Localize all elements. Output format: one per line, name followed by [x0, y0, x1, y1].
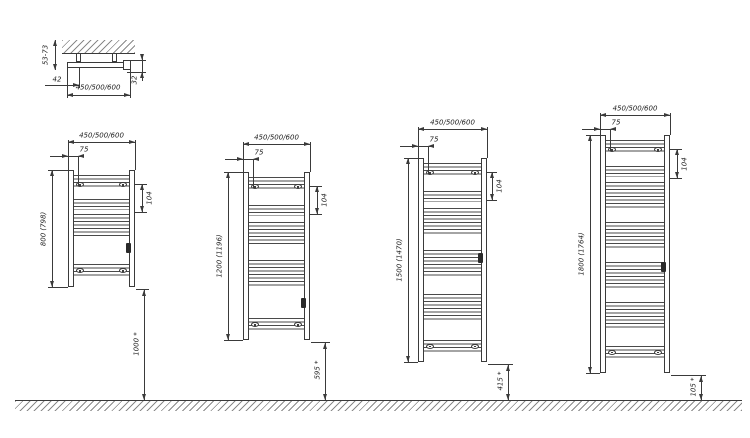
down-arrowhead: [675, 172, 679, 178]
tube-group: [606, 222, 664, 250]
tube-group: [606, 302, 664, 330]
mounting-bracket: [608, 350, 616, 355]
tube-group: [606, 182, 664, 210]
width-dimension-label: 450/500/600: [613, 106, 658, 113]
radiator-figure-4: 450/500/600751041800 (1764)105 *: [0, 0, 750, 438]
mounting-bracket: [654, 147, 662, 152]
up-arrowhead: [588, 135, 592, 141]
offset-dimension-label: 75: [612, 120, 621, 127]
dimension-line: [600, 115, 670, 116]
down-arrowhead: [699, 394, 703, 400]
up-arrowhead: [675, 149, 679, 155]
radiators-group: 450/500/60075104800 (798)1000 *450/500/6…: [0, 0, 750, 438]
mounting-bracket: [654, 350, 662, 355]
reference-line: [610, 129, 611, 151]
valve: [661, 262, 666, 272]
left-arrowhead: [600, 113, 606, 117]
extension-line: [670, 113, 671, 135]
collector-dimension-label: 104: [682, 157, 689, 170]
technical-drawing-canvas: 53-73 42 32 450/500/600 450/500/60075104…: [0, 0, 750, 438]
reference-line: [670, 178, 682, 179]
tube-group: [606, 166, 664, 177]
right-arrowhead: [664, 113, 670, 117]
floor-clearance-label: 105 *: [691, 377, 698, 396]
tube-group: [606, 262, 664, 290]
right-arrowhead: [594, 127, 600, 131]
height-dimension-label: 1800 (1764): [579, 232, 586, 275]
dimension-line: [590, 135, 591, 373]
down-arrowhead: [588, 367, 592, 373]
right-collector: [664, 135, 670, 373]
extension-line: [586, 373, 600, 374]
up-arrowhead: [699, 376, 703, 382]
